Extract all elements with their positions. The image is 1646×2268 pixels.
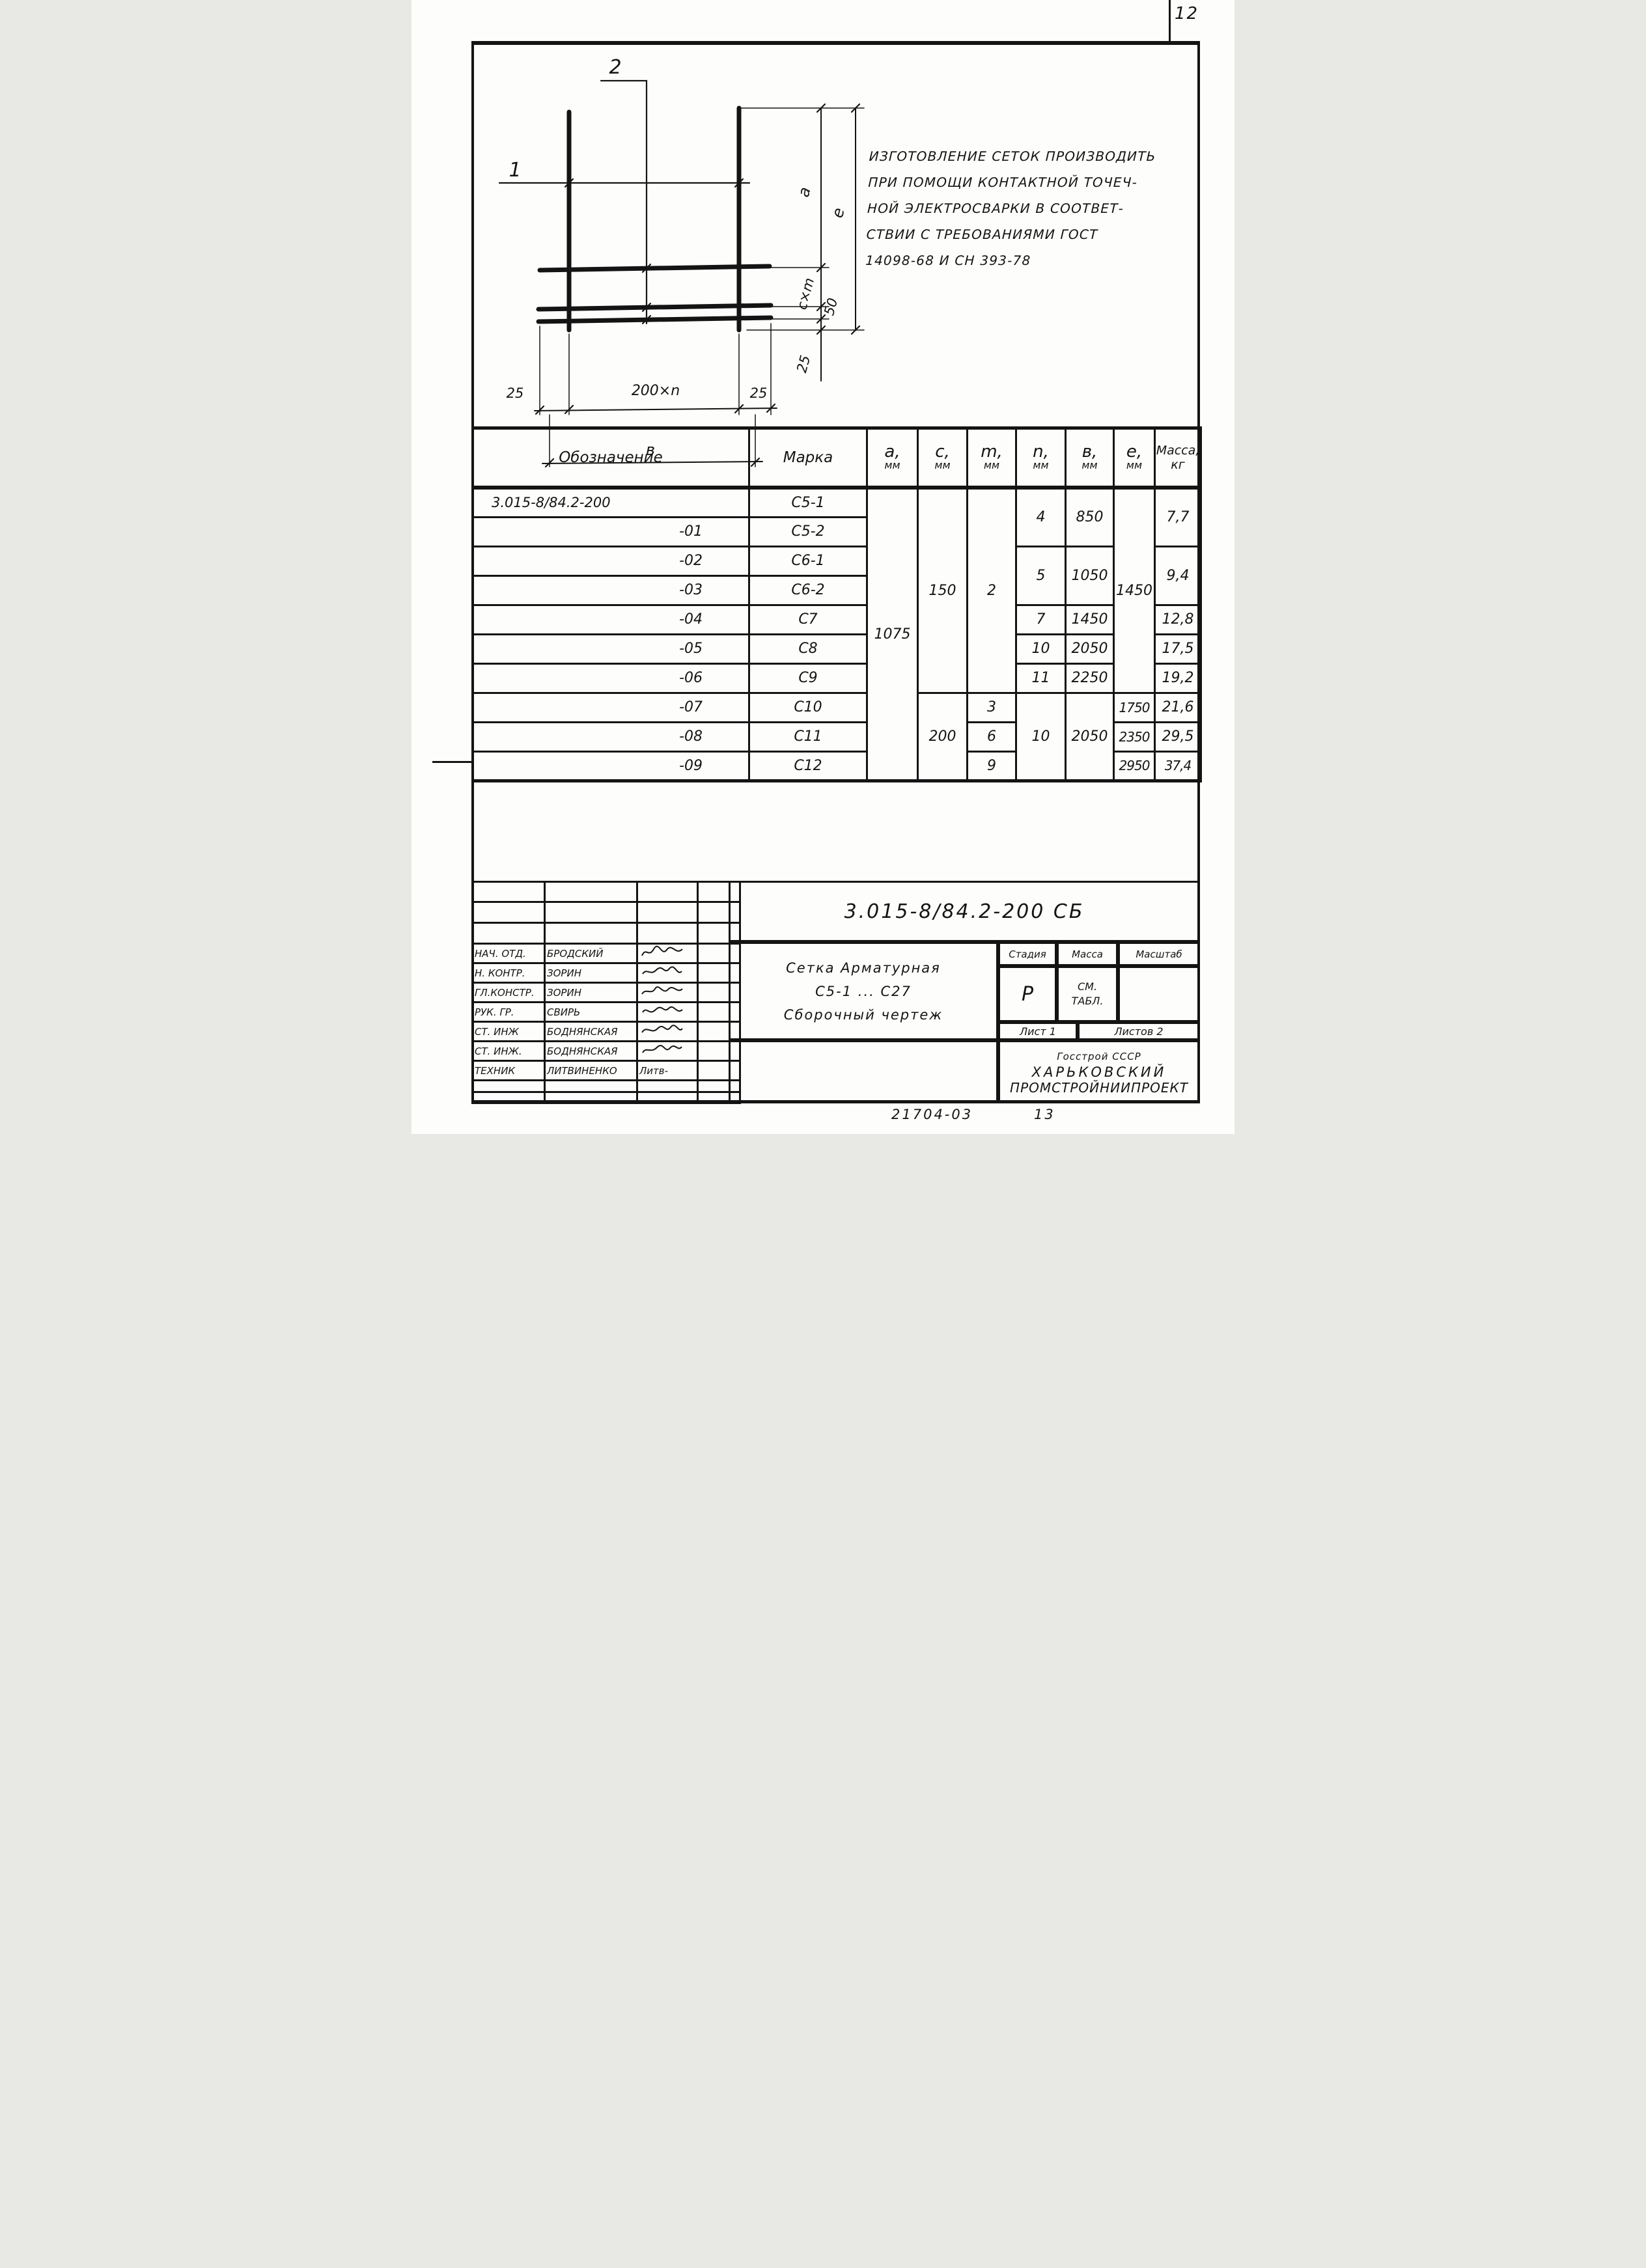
table-row: -02 С6-1 5 1050 9,4 (473, 546, 1201, 575)
mass-value: СМ. ТАБЛ. (1057, 966, 1118, 1022)
col-designation: Обозначение (473, 428, 749, 488)
org-line1: Госстрой СССР (1010, 1049, 1188, 1064)
cell-mark: С9 (749, 663, 867, 693)
signer-name: ЛИТВИНЕНКО (545, 1061, 637, 1081)
col-m-letter: m, (968, 444, 1015, 460)
sheet-cell: Лист 1 (998, 1022, 1078, 1040)
cell-designation: -07 (473, 693, 749, 722)
signers-empty-row (473, 1092, 740, 1103)
col-b: в,мм (1066, 428, 1114, 488)
signer-name: БОДНЯНСКАЯ (545, 1022, 637, 1042)
signer-name: ЗОРИН (545, 983, 637, 1003)
col-mark: Марка (749, 428, 867, 488)
title-block: НАЧ. ОТД. БРОДСКИЙ Н. КОНТР. ЗОРИН ГЛ.КО… (471, 881, 1200, 1103)
dim-cxm-label: c×m (794, 276, 817, 311)
cell-mark: С5-2 (749, 517, 867, 546)
cell-mass: 37,4 (1155, 751, 1201, 781)
cell-e: 1750 (1114, 693, 1155, 722)
signer-name: СВИРЬ (545, 1003, 637, 1022)
signer-role: Н. КОНТР. (473, 963, 545, 983)
mesh-spec-table: Обозначение Марка a,мм c,мм m,мм n,мм в,… (471, 426, 1202, 782)
table-row: -06 С9 11 2250 19,2 (473, 663, 1201, 693)
signers-empty-row (473, 923, 740, 944)
col-n: n,мм (1016, 428, 1066, 488)
sheets-cell: Листов 2 (1078, 1022, 1200, 1040)
signer-role: ТЕХНИК (473, 1061, 545, 1081)
cell-m: 6 (968, 722, 1016, 751)
col-e: e,мм (1114, 428, 1155, 488)
rebar-horizontal-2 (538, 305, 771, 309)
cell-m: 2 (968, 488, 1016, 693)
signature-scribble (637, 1042, 698, 1061)
signer-row: Н. КОНТР. ЗОРИН (473, 963, 740, 983)
cell-n: 10 (1016, 693, 1066, 781)
col-n-unit: мм (1017, 460, 1065, 471)
rebar-horizontal-1 (540, 266, 770, 270)
welding-note: ИЗГОТОВЛЕНИЕ СЕТОК ПРОИЗВОДИТЬ ПРИ ПОМОЩ… (865, 143, 1201, 273)
signer-signature-text: Литв- (637, 1061, 698, 1081)
note-line: 14098-68 И СН 393-78 (865, 247, 1197, 273)
signer-row: ГЛ.КОНСТР. ЗОРИН (473, 983, 740, 1003)
cell-mark: С6-1 (749, 546, 867, 575)
sheet-number-tick (1169, 0, 1171, 43)
cell-designation: -06 (473, 663, 749, 693)
col-a-unit: мм (868, 460, 917, 471)
cell-b: 2250 (1066, 663, 1114, 693)
cell-mark: С8 (749, 634, 867, 663)
signers-empty-row (473, 1081, 740, 1092)
sheet-number: 12 (1175, 4, 1220, 23)
signer-name: БРОДСКИЙ (545, 944, 637, 963)
rebar-horizontal-3 (538, 318, 771, 322)
note-line: ИЗГОТОВЛЕНИЕ СЕТОК ПРОИЗВОДИТЬ (869, 143, 1200, 169)
signature-scribble (637, 963, 698, 983)
signer-role: НАЧ. ОТД. (473, 944, 545, 963)
cell-b: 850 (1066, 488, 1114, 546)
signer-row: ТЕХНИК ЛИТВИНЕНКО Литв- (473, 1061, 740, 1081)
dim-e-label: e (828, 206, 848, 220)
cell-b: 2050 (1066, 693, 1114, 781)
col-mass: Масса,кг (1155, 428, 1201, 488)
mass-header: Масса (1057, 942, 1118, 966)
cell-designation: -01 (473, 517, 749, 546)
cell-e: 1450 (1114, 488, 1155, 693)
cell-c: 200 (918, 693, 968, 781)
title-block-empty-cell (729, 1040, 998, 1103)
signer-role: ГЛ.КОНСТР. (473, 983, 545, 1003)
signer-row: РУК. ГР. СВИРЬ (473, 1003, 740, 1022)
org-line2: ХАРЬКОВСКИЙ (1010, 1064, 1188, 1080)
col-e-unit: мм (1115, 460, 1154, 471)
signature-scribble (637, 1022, 698, 1042)
signature-scribble (637, 983, 698, 1003)
drawing-title-line2: С5-1 ... С27 (784, 980, 943, 1003)
organization: Госстрой СССР ХАРЬКОВСКИЙ ПРОМСТРОЙНИИПР… (998, 1040, 1200, 1103)
cell-mark: С6-2 (749, 575, 867, 605)
stage-value: Р (998, 966, 1057, 1022)
col-m: m,мм (968, 428, 1016, 488)
table-row: -07 С10 200 3 10 2050 1750 21,6 (473, 693, 1201, 722)
col-n-letter: n, (1017, 444, 1065, 460)
dim-25-bottom-right-label: 25 (750, 385, 768, 401)
mesh-assembly-figure: 1 2 a e c×m 50 25 25 200×n 25 в (473, 42, 877, 472)
mass-value-line2: ТАБЛ. (1072, 994, 1104, 1008)
signers-empty-row (473, 902, 740, 923)
stage-header: Стадия (998, 942, 1057, 966)
col-b-unit: мм (1067, 460, 1113, 471)
cell-e: 2350 (1114, 722, 1155, 751)
signer-role: СТ. ИНЖ. (473, 1042, 545, 1061)
cell-designation: -04 (473, 605, 749, 634)
cell-c: 150 (918, 488, 968, 693)
cell-a: 1075 (867, 488, 918, 781)
col-c: c,мм (918, 428, 968, 488)
callout-2-leader (601, 81, 647, 324)
cell-n: 4 (1016, 488, 1066, 546)
scale-header: Масштаб (1118, 942, 1200, 966)
signer-name: ЗОРИН (545, 963, 637, 983)
fold-mark (432, 761, 473, 763)
cell-designation: -03 (473, 575, 749, 605)
note-line: ПРИ ПОМОЩИ КОНТАКТНОЙ ТОЧЕЧ- (868, 169, 1199, 195)
mass-value-line1: СМ. (1072, 980, 1104, 994)
note-line: НОЙ ЭЛЕКТРОСВАРКИ В СООТВЕТ- (867, 195, 1198, 221)
col-m-unit: мм (968, 460, 1015, 471)
col-e-letter: e, (1115, 444, 1154, 460)
dim-200xn-label: 200×n (632, 383, 680, 399)
cell-n: 5 (1016, 546, 1066, 605)
cell-designation: -09 (473, 751, 749, 781)
signer-row: СТ. ИНЖ БОДНЯНСКАЯ (473, 1022, 740, 1042)
table-row: -04 С7 7 1450 12,8 (473, 605, 1201, 634)
col-b-letter: в, (1067, 444, 1113, 460)
dim-50-label: 50 (821, 296, 841, 317)
cell-mark: С12 (749, 751, 867, 781)
cell-e: 2950 (1114, 751, 1155, 781)
dim-a-label: a (794, 185, 815, 199)
drawing-title: Сетка Арматурная С5-1 ... С27 Сборочный … (729, 942, 998, 1040)
drawing-title-line3: Сборочный чертеж (784, 1003, 943, 1027)
col-c-unit: мм (919, 460, 966, 471)
dim-25-right-label: 25 (794, 353, 813, 374)
cell-mass: 17,5 (1155, 634, 1201, 663)
cell-mark: С10 (749, 693, 867, 722)
signature-scribble (637, 944, 698, 963)
cell-b: 1450 (1066, 605, 1114, 634)
cell-n: 11 (1016, 663, 1066, 693)
cell-b: 1050 (1066, 546, 1114, 605)
cell-designation: 3.015-8/84.2-200 (473, 488, 749, 517)
scale-value (1118, 966, 1200, 1022)
cell-designation: -08 (473, 722, 749, 751)
cell-mass: 21,6 (1155, 693, 1201, 722)
signer-name: БОДНЯНСКАЯ (545, 1042, 637, 1061)
signer-row: НАЧ. ОТД. БРОДСКИЙ (473, 944, 740, 963)
cell-mass: 7,7 (1155, 488, 1201, 546)
dim-25-left-label: 25 (507, 385, 524, 401)
cell-mass: 12,8 (1155, 605, 1201, 634)
cell-designation: -05 (473, 634, 749, 663)
cell-mass: 9,4 (1155, 546, 1201, 605)
signer-role: СТ. ИНЖ (473, 1022, 545, 1042)
footer-sheet-code: 13 (1034, 1107, 1055, 1122)
cell-m: 9 (968, 751, 1016, 781)
col-a: a,мм (867, 428, 918, 488)
document-number: 3.015-8/84.2-200 СБ (729, 881, 1200, 942)
callout-2-label: 2 (609, 56, 621, 79)
signers-table: НАЧ. ОТД. БРОДСКИЙ Н. КОНТР. ЗОРИН ГЛ.КО… (471, 881, 741, 1104)
note-line: СТВИИ С ТРЕБОВАНИЯМИ ГОСТ (866, 221, 1197, 247)
cell-b: 2050 (1066, 634, 1114, 663)
col-a-letter: a, (868, 444, 917, 460)
cell-n: 10 (1016, 634, 1066, 663)
signers-empty-row (473, 882, 740, 902)
cell-n: 7 (1016, 605, 1066, 634)
col-c-letter: c, (919, 444, 966, 460)
cell-m: 3 (968, 693, 1016, 722)
col-mass-label: Масса, (1156, 443, 1200, 458)
cell-mark: С11 (749, 722, 867, 751)
table-header-row: Обозначение Марка a,мм c,мм m,мм n,мм в,… (473, 428, 1201, 488)
cell-mass: 29,5 (1155, 722, 1201, 751)
signature-scribble (637, 1003, 698, 1022)
cell-designation: -02 (473, 546, 749, 575)
col-mass-unit: кг (1171, 458, 1184, 472)
signer-role: РУК. ГР. (473, 1003, 545, 1022)
table-row: -05 С8 10 2050 17,5 (473, 634, 1201, 663)
cell-mark: С5-1 (749, 488, 867, 517)
signer-row: СТ. ИНЖ. БОДНЯНСКАЯ (473, 1042, 740, 1061)
cell-mass: 19,2 (1155, 663, 1201, 693)
table-row: 3.015-8/84.2-200 С5-1 1075 150 2 4 850 1… (473, 488, 1201, 517)
footer-document-code: 21704-03 (891, 1107, 973, 1122)
drawing-title-line1: Сетка Арматурная (784, 956, 943, 980)
callout-1-label: 1 (509, 159, 521, 182)
blueprint-page: 12 (411, 0, 1234, 1134)
org-line3: ПРОМСТРОЙНИИПРОЕКТ (1010, 1080, 1188, 1096)
cell-mark: С7 (749, 605, 867, 634)
